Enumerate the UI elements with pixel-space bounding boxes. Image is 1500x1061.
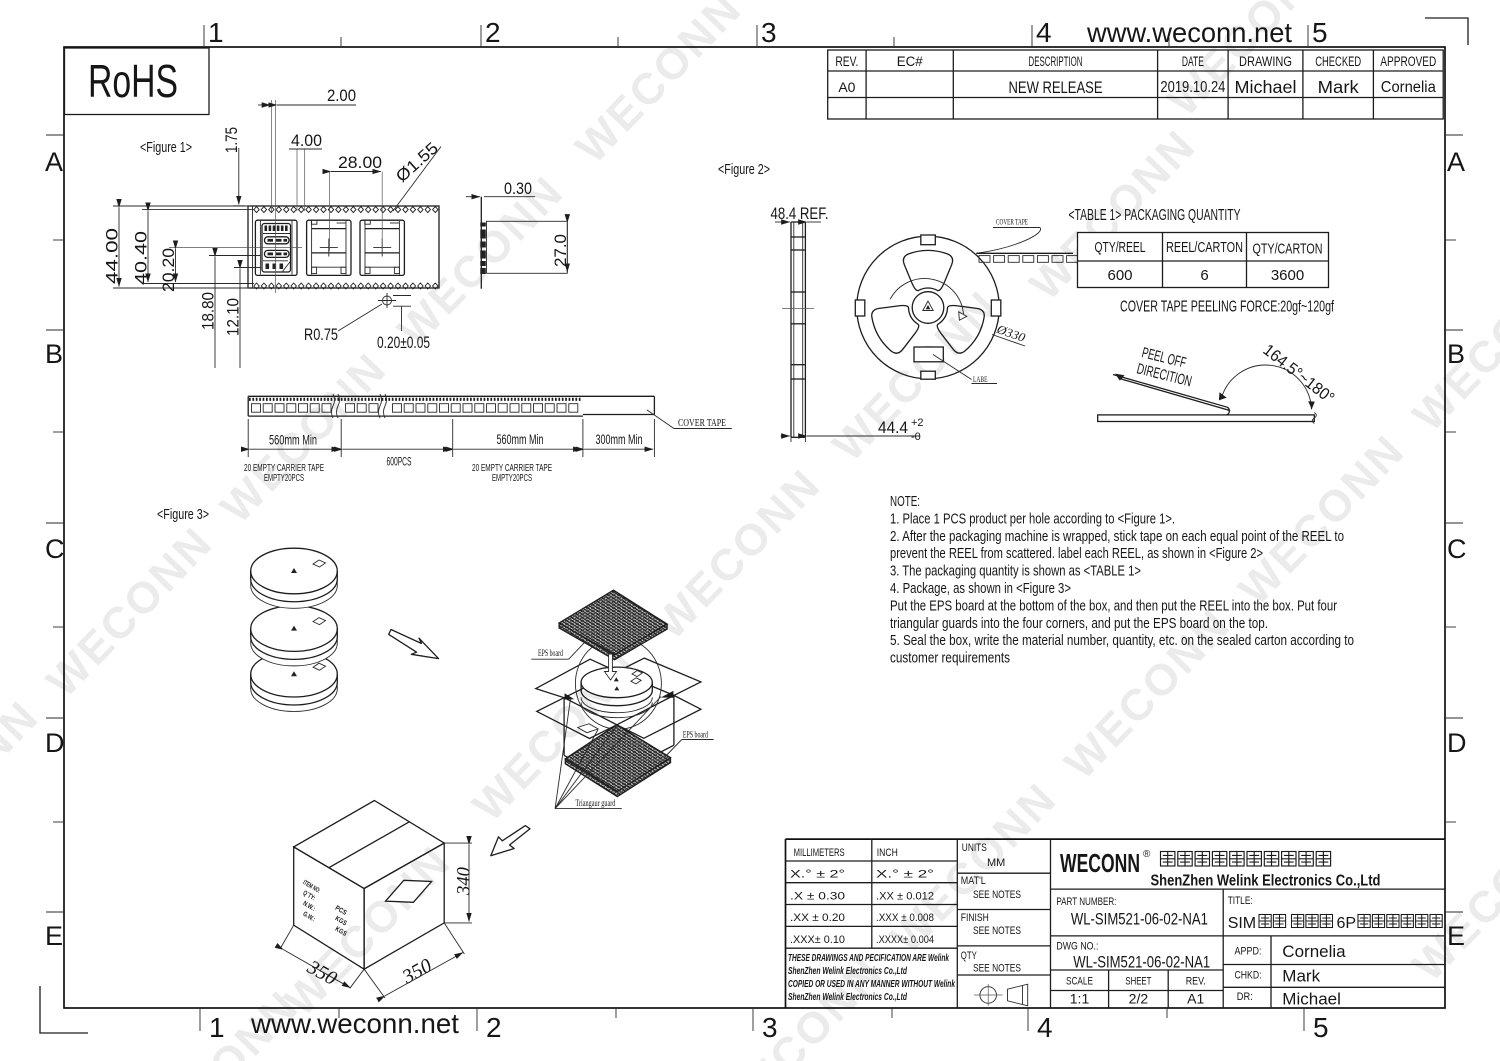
svg-text:+2: +2 [911,417,924,429]
svg-text:COPIED OR USED IN ANY MANNER W: COPIED OR USED IN ANY MANNER WITHOUT Wel… [788,979,955,990]
svg-text:Mark: Mark [1282,967,1320,986]
svg-text:4. Package, as shown in <Figur: 4. Package, as shown in <Figure 3> [890,581,1071,597]
svg-text:DWG NO.:: DWG NO.: [1056,941,1098,953]
svg-text:<Figure 1>: <Figure 1> [140,140,192,156]
svg-text:27.0: 27.0 [552,234,570,267]
svg-text:Mark: Mark [1318,77,1359,97]
svg-text:4.00: 4.00 [291,132,322,150]
svg-text:customer requirements: customer requirements [890,651,1010,667]
svg-text:INCH: INCH [877,847,898,859]
svg-text:CHKD:: CHKD: [1235,970,1262,982]
svg-text:Cornelia: Cornelia [1282,942,1346,961]
svg-text:<TABLE 1> PACKAGING QUANTITY: <TABLE 1> PACKAGING QUANTITY [1069,207,1241,224]
svg-text:PART NUMBER:: PART NUMBER: [1056,896,1116,908]
svg-text:5: 5 [1313,1012,1329,1043]
svg-text:X.° ± 2°: X.° ± 2° [790,869,845,881]
svg-text:FINISH: FINISH [961,912,989,924]
svg-text:5: 5 [1312,17,1328,48]
svg-text:EPS board: EPS board [683,729,708,739]
svg-text:MAT'L: MAT'L [961,875,986,887]
svg-text:340: 340 [455,866,475,896]
svg-text:.XXX± 0.10: .XXX± 0.10 [790,934,845,946]
svg-text:12.10: 12.10 [225,298,243,336]
svg-text:Michael: Michael [1282,990,1341,1009]
svg-text:D: D [1447,728,1467,758]
svg-text:SEE NOTES: SEE NOTES [973,963,1021,975]
svg-text:SHEET: SHEET [1125,976,1151,988]
svg-text:Put the EPS board at the botto: Put the EPS board at the bottom of the b… [890,598,1337,614]
svg-text:QTY/REEL: QTY/REEL [1095,239,1146,256]
svg-text:SEE NOTES: SEE NOTES [973,925,1021,937]
svg-text:560mm Min: 560mm Min [269,433,317,448]
svg-text:DRAWING: DRAWING [1239,54,1292,69]
svg-text:R0.75: R0.75 [304,326,338,344]
svg-text:48.4 REF.: 48.4 REF. [771,205,829,223]
svg-text:2.00: 2.00 [327,87,356,105]
svg-text:6P: 6P [1337,915,1357,932]
svg-text:C: C [45,534,65,564]
svg-text:COVER TAPE: COVER TAPE [996,218,1028,227]
svg-text:SIM: SIM [1228,915,1256,932]
svg-text:.X ± 0.30: .X ± 0.30 [790,890,845,902]
svg-text:.XXXX± 0.004: .XXXX± 0.004 [876,934,934,946]
svg-text:COVER TAPE PEELING FORCE:20gf~: COVER TAPE PEELING FORCE:20gf~120gf [1120,299,1334,316]
svg-text:6: 6 [1200,267,1208,284]
svg-text:REEL/CARTON: REEL/CARTON [1166,239,1243,256]
svg-text:A: A [1447,147,1465,177]
svg-text:44.4: 44.4 [878,419,908,437]
svg-text:40.40: 40.40 [133,231,151,285]
svg-text:E: E [45,921,63,951]
svg-text:1:1: 1:1 [1070,991,1090,1007]
svg-text:600PCS: 600PCS [387,455,412,469]
svg-text:www.weconn.net: www.weconn.net [1086,17,1292,48]
svg-text:560mm Min: 560mm Min [497,432,544,447]
svg-text:2. After the packaging machine: 2. After the packaging machine is wrappe… [890,529,1344,545]
svg-text:prevent the REEL from scattere: prevent the REEL from scattered. label e… [890,546,1263,562]
svg-text:REV.: REV. [835,54,858,69]
svg-text:E: E [1447,921,1465,951]
svg-text:Michael: Michael [1235,77,1297,97]
svg-text:NOTE:: NOTE: [890,494,920,510]
svg-text:TITLE:: TITLE: [1228,895,1253,907]
svg-text:MM: MM [987,857,1005,869]
svg-text:www.weconn.net: www.weconn.net [250,1008,459,1039]
svg-text:triangular guards into the fou: triangular guards into the four corners,… [890,616,1268,632]
svg-text:B: B [45,339,63,369]
svg-text:A0: A0 [838,79,855,95]
svg-text:LABE: LABE [973,375,988,384]
svg-text:MILLIMETERS: MILLIMETERS [794,847,845,859]
svg-text:20.20: 20.20 [160,248,178,292]
svg-text:B: B [1447,339,1465,369]
svg-text:44.00: 44.00 [104,228,122,284]
svg-text:DATE: DATE [1182,54,1204,69]
svg-text:D: D [45,728,65,758]
svg-text:4: 4 [1036,17,1052,48]
svg-text:SCALE: SCALE [1066,976,1093,988]
svg-text:REV.: REV. [1186,976,1206,988]
svg-text:QTY/CARTON: QTY/CARTON [1253,241,1323,258]
svg-text:Triangaur guard: Triangaur guard [575,798,615,808]
svg-text:SEE NOTES: SEE NOTES [973,889,1021,901]
svg-text:300mm Min: 300mm Min [596,432,643,447]
svg-text:28.00: 28.00 [338,154,382,172]
svg-text:3. The packaging quantity is s: 3. The packaging quantity is shown as <T… [890,564,1141,580]
svg-text:EC#: EC# [897,54,923,69]
svg-text:EMPTY20PCS: EMPTY20PCS [264,472,304,484]
svg-text:NEW RELEASE: NEW RELEASE [1009,78,1103,97]
svg-text:Cornelia: Cornelia [1381,79,1436,96]
svg-text:A: A [45,147,63,177]
svg-text:WL-SIM521-06-02-NA1: WL-SIM521-06-02-NA1 [1071,911,1208,929]
svg-text:1.75: 1.75 [223,127,241,153]
svg-text:APPD:: APPD: [1235,946,1262,958]
svg-text:1. Place 1 PCS product per hol: 1. Place 1 PCS product per hole accordin… [890,511,1175,527]
svg-text:ShenZhen Welink Electronics Co: ShenZhen Welink Electronics Co.,Ltd [788,966,908,977]
svg-text:WECONN: WECONN [1060,848,1140,878]
svg-text:4: 4 [1037,1012,1053,1043]
svg-text:.XXX ± 0.008: .XXX ± 0.008 [876,912,934,924]
svg-text:3600: 3600 [1271,267,1304,284]
svg-text:5. Seal the box, write the mat: 5. Seal the box, write the material numb… [890,633,1354,649]
svg-text:<Figure 3>: <Figure 3> [157,507,209,523]
svg-text:-0: -0 [911,431,921,443]
svg-text:3: 3 [761,17,777,48]
svg-text:<Figure 2>: <Figure 2> [718,162,770,178]
svg-text:.XX ± 0.012: .XX ± 0.012 [876,890,934,902]
svg-text:600: 600 [1107,267,1132,284]
svg-text:C: C [1447,534,1467,564]
svg-text:EPS board: EPS board [538,648,563,658]
svg-text:QTY: QTY [961,950,977,962]
svg-text:CHECKED: CHECKED [1315,54,1361,69]
svg-text:ShenZhen Welink Electronics Co: ShenZhen Welink Electronics Co.,Ltd [788,992,908,1003]
svg-text:1: 1 [208,17,224,48]
svg-text:RoHS: RoHS [88,55,178,107]
svg-text:COVER TAPE: COVER TAPE [678,418,726,429]
svg-text:UNITS: UNITS [962,842,987,854]
svg-text:THESE DRAWINGS AND PECIFICATIO: THESE DRAWINGS AND PECIFICATION ARE Weli… [788,953,949,964]
svg-text:APPROVED: APPROVED [1380,54,1436,69]
svg-text:2019.10.24: 2019.10.24 [1160,79,1225,96]
svg-text:18.80: 18.80 [200,292,218,330]
svg-text:3: 3 [762,1012,778,1043]
svg-text:X.° ± 2°: X.° ± 2° [876,869,934,881]
svg-text:0.20±0.05: 0.20±0.05 [377,334,430,352]
svg-text:EMPTY20PCS: EMPTY20PCS [492,472,532,484]
svg-text:DESCRIPTION: DESCRIPTION [1029,54,1083,69]
svg-text:2: 2 [485,17,501,48]
svg-text:ShenZhen Welink Electronics Co: ShenZhen Welink Electronics Co.,Ltd [1151,873,1381,890]
svg-text:1: 1 [209,1012,225,1043]
svg-text:A1: A1 [1187,991,1204,1007]
svg-text:.XX ± 0.20: .XX ± 0.20 [790,912,845,924]
svg-text:0.30: 0.30 [504,180,532,198]
svg-text:2/2: 2/2 [1129,991,1149,1007]
svg-text:DR:: DR: [1237,991,1253,1003]
svg-text:2: 2 [486,1012,502,1043]
svg-text:WL-SIM521-06-02-NA1: WL-SIM521-06-02-NA1 [1073,954,1210,972]
svg-text:®: ® [1143,849,1151,860]
